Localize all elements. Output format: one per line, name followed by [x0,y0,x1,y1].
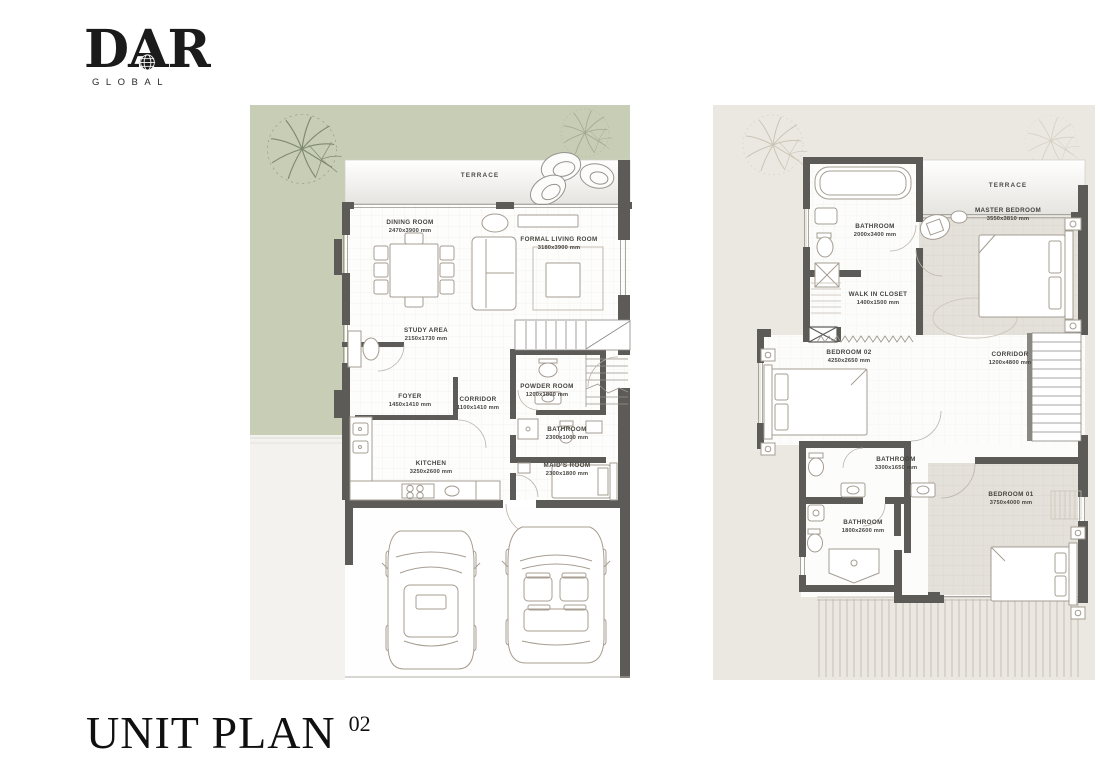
room-label: BEDROOM 01 [988,491,1033,498]
car-top-view [382,531,480,669]
unit-plan-title: UNIT PLAN02 [86,706,371,759]
room-dims: 3550x3810 mm [987,216,1030,222]
room-dims: 1400x1500 mm [857,300,900,306]
first-floor-plan: TERRACE BATHROOM 2000x3400 mm MASTER BED… [713,105,1095,680]
shower-icon [518,419,538,439]
room-dims: 1200x1800 mm [526,392,569,398]
room-dims: 2300x1800 mm [546,471,589,477]
room-label: BATHROOM [547,426,586,433]
shower-icon [815,263,839,287]
room-label: KITCHEN [416,460,447,467]
shaft [809,327,837,342]
room-label: FOYER [398,393,422,400]
room-label: CORRIDOR [459,396,496,403]
deck-floor [817,599,1083,677]
ground-floor-plan: TERRACE [250,105,640,680]
room-dims: 3180x3900 mm [538,245,581,251]
room-label: BEDROOM 02 [826,349,871,356]
nightstand [761,349,775,361]
logo-brand-text: DAR [84,24,254,76]
room-dims: 2000x3400 mm [854,232,897,238]
title-text: UNIT PLAN [86,707,336,758]
room-label: BATHROOM [843,519,882,526]
nightstand [761,443,775,455]
toilet-icon [809,458,824,476]
toilet-icon [808,534,823,552]
staircase [515,320,630,350]
room-dims: 1200x4800 mm [989,360,1032,366]
room-dims: 3300x1650 mm [875,465,918,471]
bathtub-icon [815,167,911,199]
globe-icon [139,54,156,71]
room-dims: 3750x4000 mm [990,500,1033,506]
nightstand [1071,527,1085,539]
room-dims: 1450x1410 mm [389,402,432,408]
room-label: CORRIDOR [991,351,1028,358]
room-label: WALK IN CLOSET [849,291,908,298]
room-dims: 3250x2600 mm [410,469,453,475]
room-label: BATHROOM [855,223,894,230]
toilet-icon [817,233,833,257]
sink-icon [911,483,935,497]
terrace-label: TERRACE [461,172,500,179]
brochure-page: DAR GLOBAL [0,0,1109,774]
room-label: BATHROOM [876,456,915,463]
room-label: POWDER ROOM [520,383,574,390]
room-dims: 4250x2650 mm [828,358,871,364]
sink-icon [539,363,557,377]
logo-subtitle-text: GLOBAL [84,77,254,88]
terrace-label: TERRACE [989,182,1028,189]
dar-global-logo: DAR GLOBAL [84,24,254,94]
sink-icon [841,483,865,497]
nightstand [1065,218,1081,230]
title-number: 02 [349,711,371,736]
room-label: FORMAL LIVING ROOM [520,236,597,243]
room-dims: 2300x1000 mm [546,435,589,441]
room-label: DINING ROOM [386,219,433,226]
fridge-icon [476,481,500,500]
room-label: MAID'S ROOM [544,462,591,469]
nightstand [1071,607,1085,619]
staircase [1032,333,1081,441]
coffee-table [546,263,580,297]
room-label: STUDY AREA [404,327,448,334]
room-label: MASTER BEDROOM [975,207,1041,214]
sink-icon [808,505,824,521]
car-top-view [502,527,610,663]
room-dims: 2470x3900 mm [389,228,432,234]
nightstand [1065,320,1081,332]
sink-icon [815,208,837,224]
room-dims: 1800x2600 mm [842,528,885,534]
room-dims: 1100x1410 mm [457,405,499,411]
room-dims: 2150x1730 mm [405,336,448,342]
